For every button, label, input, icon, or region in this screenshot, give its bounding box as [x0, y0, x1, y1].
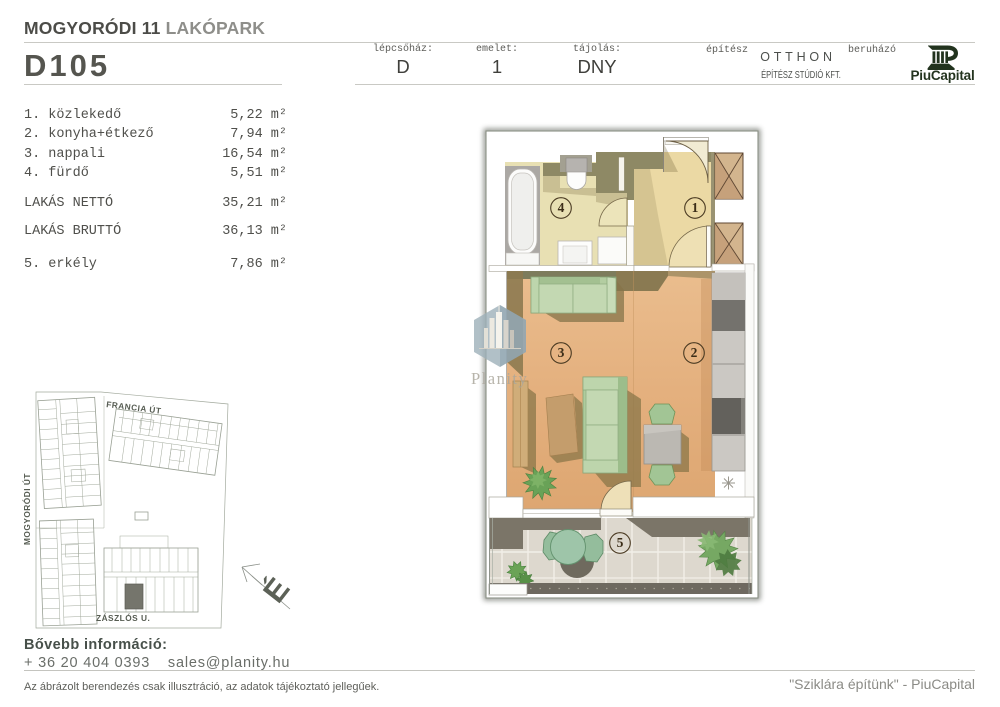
svg-text:Planity: Planity — [471, 369, 528, 388]
svg-text:MOGYORÓDI ÚT: MOGYORÓDI ÚT — [21, 473, 32, 545]
svg-text:É: É — [256, 571, 296, 609]
svg-text:3: 3 — [558, 345, 565, 360]
svg-text:4: 4 — [558, 200, 565, 215]
svg-text:1: 1 — [692, 200, 699, 215]
svg-text:2: 2 — [691, 345, 698, 360]
svg-text:5: 5 — [617, 535, 624, 550]
svg-text:ZÁSZLÓS U.: ZÁSZLÓS U. — [96, 612, 150, 623]
